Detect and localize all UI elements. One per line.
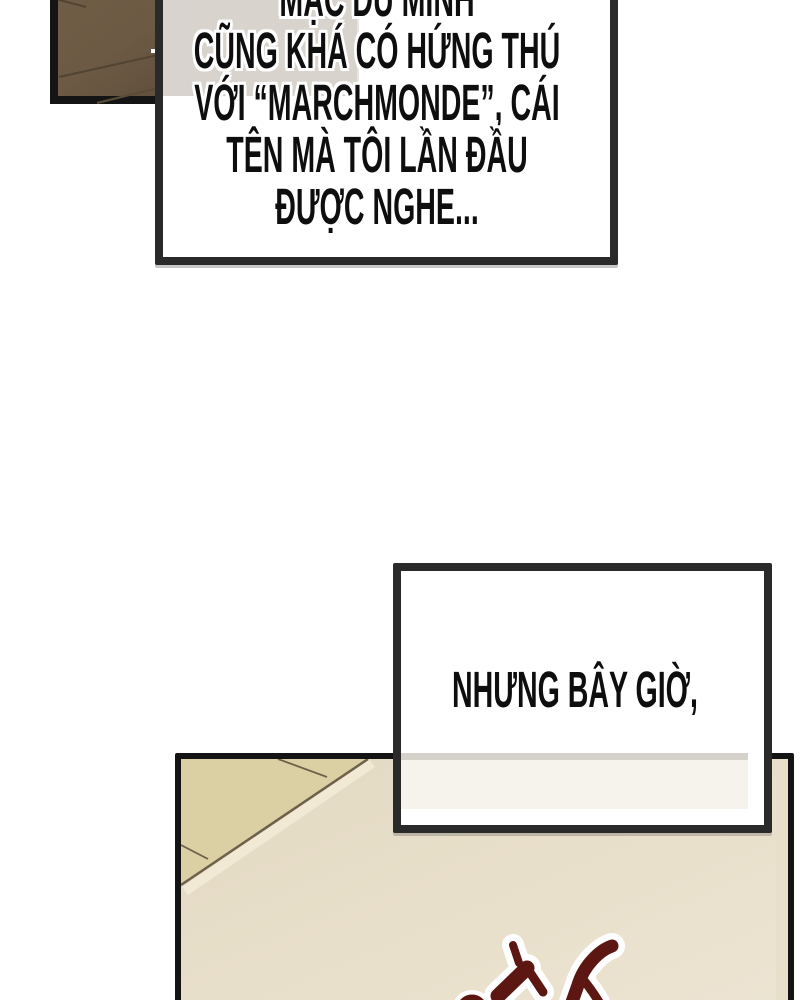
caption1-line-2: CŨNG KHÁ CÓ HỨNG THÚ (153, 25, 601, 77)
caption2-text: NHƯNG BÂY GIỜ, (351, 664, 799, 716)
caption1-line-4: TÊN MÀ TÔI LẦN ĐẦU (153, 129, 601, 181)
caption2-line-1: NHƯNG BÂY GIỜ, (351, 664, 799, 716)
comic-page: MẶC DÙ MÌNH CŨNG KHÁ CÓ HỨNG THÚ VỚI “MA… (0, 0, 800, 1000)
caption1-line-5: ĐƯỢC NGHE... (153, 181, 601, 233)
wood-grain-cross-line (95, 84, 160, 106)
wood-grain-line (59, 55, 158, 77)
caption1-line-3: VỚI “MARCHMONDE”, CÁI (153, 77, 601, 129)
caption1-text: MẶC DÙ MÌNH CŨNG KHÁ CÓ HỨNG THÚ VỚI “MA… (153, 0, 601, 233)
wood-grain-line (58, 0, 86, 7)
wood-grain-line (97, 88, 158, 103)
wood-grain-svg (58, 0, 164, 96)
panel-tint-showthrough (401, 760, 748, 809)
panel-border-showthrough (401, 753, 748, 760)
